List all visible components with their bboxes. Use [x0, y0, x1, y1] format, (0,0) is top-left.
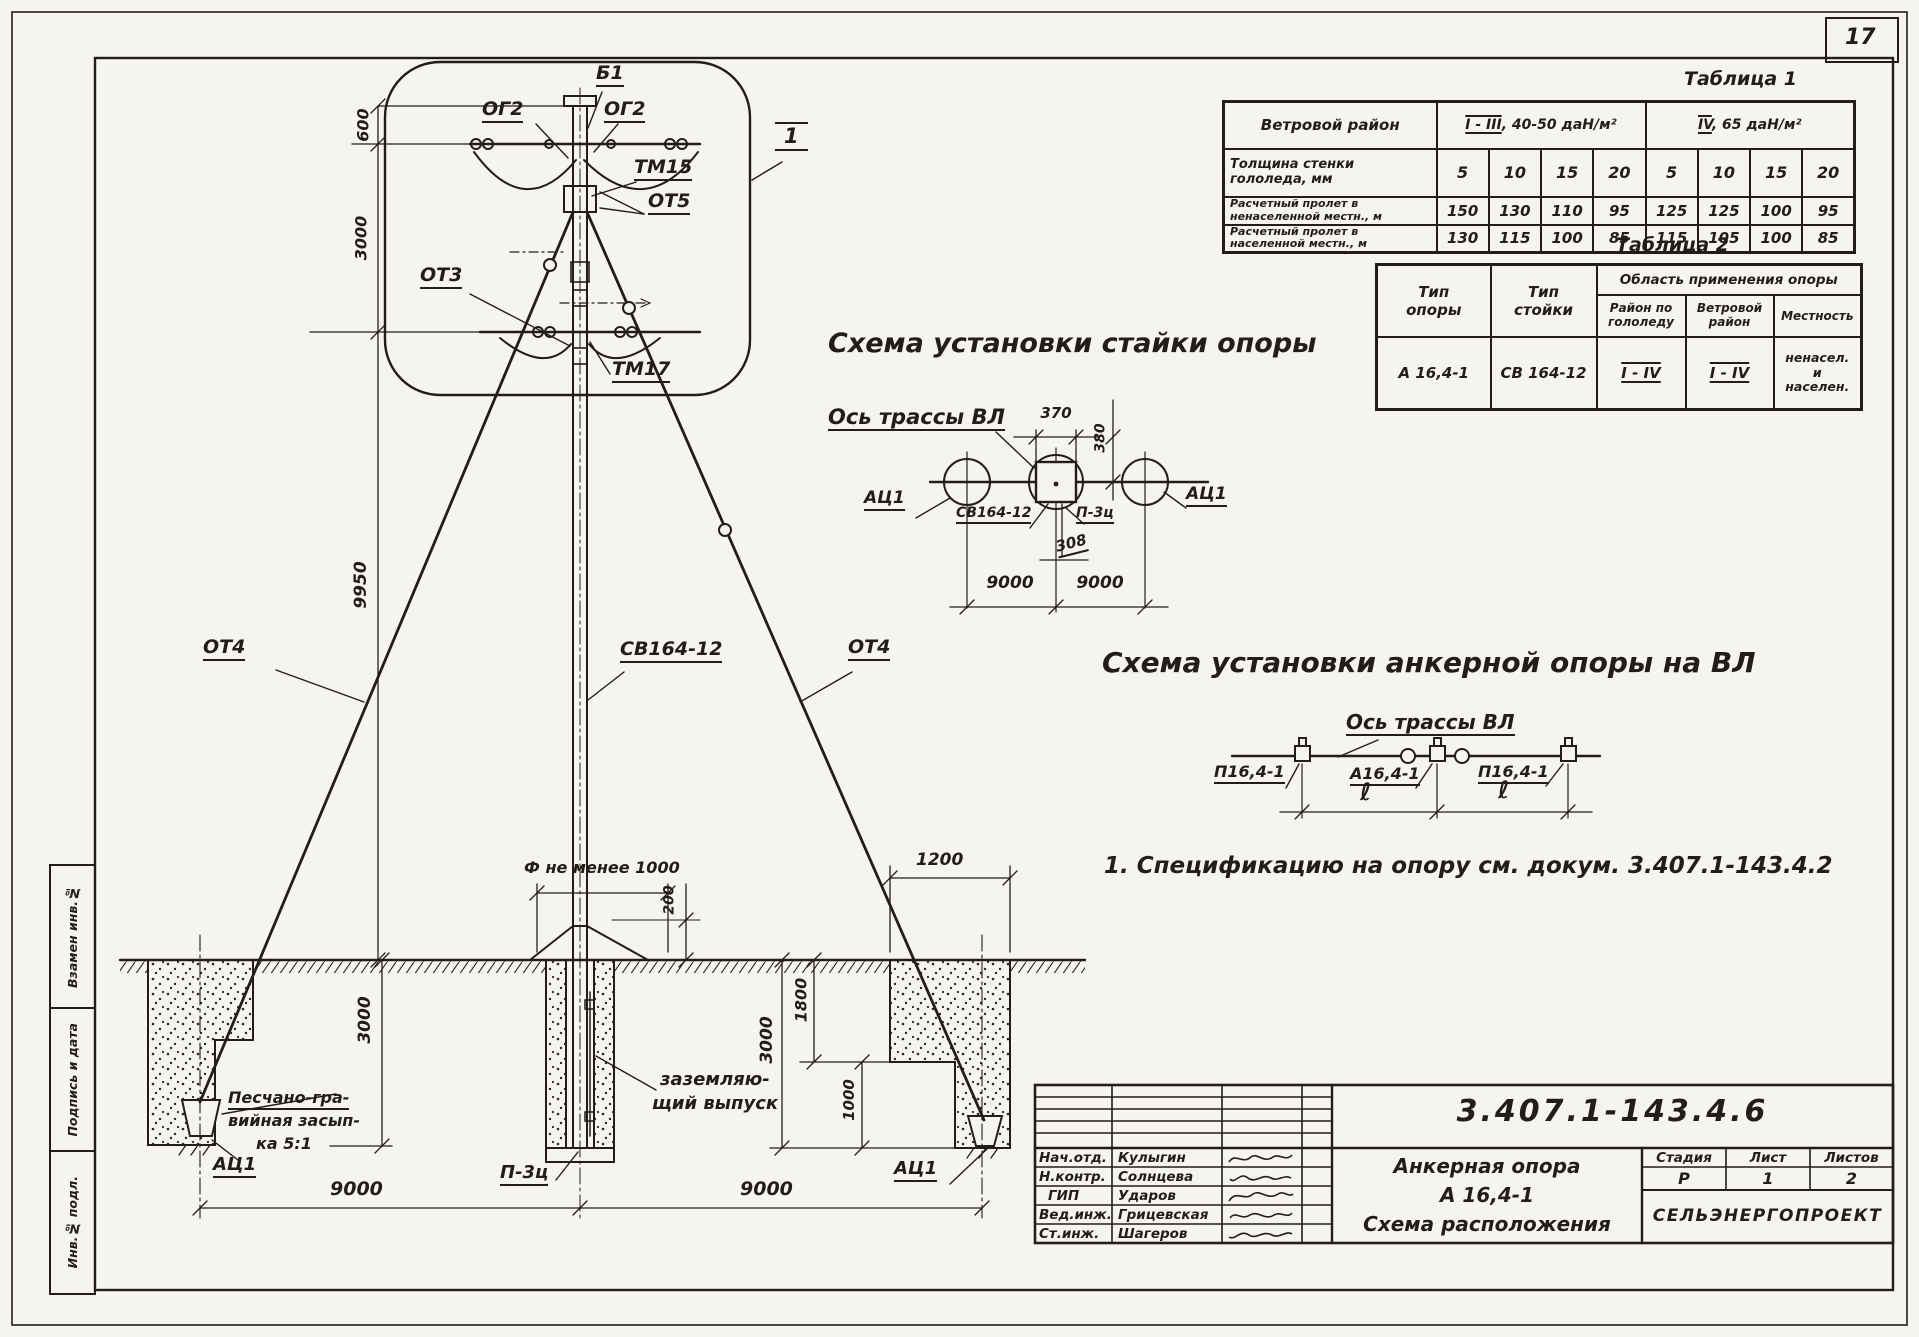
label-anchor-right: АЦ1 [894, 1160, 937, 1182]
scheme-stand-axis-label: Ось трассы ВЛ [828, 406, 1005, 431]
table2: Тип опоры Тип стойки Область применения … [1375, 263, 1863, 411]
sub-wind-line1: Ветровой [1697, 301, 1762, 315]
value-cell: 5 [1437, 149, 1489, 197]
wind-range-1: I - III [1465, 117, 1501, 133]
grounding-note: заземляю- щий выпуск [660, 1068, 778, 1117]
sheet-number: 17 [1845, 26, 1876, 49]
sheet-value: 1 [1726, 1169, 1810, 1188]
value-cell: 125 [1698, 197, 1750, 225]
sub-wind-line2: район [1709, 315, 1751, 329]
value-cell: 20 [1802, 149, 1854, 197]
value-cell: 15 [1541, 149, 1593, 197]
dim-3000-upper: 3000 [354, 216, 371, 261]
table2-area-header: Область применения опоры [1597, 265, 1862, 295]
role-name: Кулыгин [1118, 1150, 1186, 1166]
drawing-title: Анкерная опора А 16,4-1 Схема расположен… [1332, 1152, 1642, 1238]
scheme-line-span-right: ℓ [1498, 778, 1509, 803]
dim-9950: 9950 [353, 561, 371, 608]
col-stand-line1: Тип [1528, 283, 1559, 301]
dim-3000-pit-right: 3000 [759, 1016, 777, 1063]
label-ot4-left: ОТ4 [203, 638, 245, 661]
table1-caption: Таблица 1 [1684, 70, 1797, 90]
grounding-line1: заземляю- [660, 1069, 770, 1090]
table1-wind-group1: I - III, 40-50 даН/м² [1437, 102, 1646, 149]
span1-label-line1: Расчетный пролет в [1230, 197, 1358, 210]
value-cell: 95 [1802, 197, 1854, 225]
role-label: Вед.инж. [1039, 1207, 1112, 1223]
label-ot3: ОТ3 [420, 266, 462, 289]
title-line2: А 16,4-1 [1440, 1183, 1534, 1207]
value-cell: 10 [1489, 149, 1541, 197]
stamp-sign-date: Подпись и дата [50, 1008, 95, 1151]
sheets-value: 2 [1810, 1169, 1893, 1188]
backfill-note: Песчано-гра- вийная засып- ка 5:1 [228, 1086, 360, 1156]
ice-label-line1: Толщина стенки [1230, 157, 1354, 172]
backfill-line2: вийная засып- [228, 1111, 360, 1130]
sheets-label: Листов [1810, 1150, 1893, 1166]
wind-load-1: , 40-50 даН/м² [1502, 117, 1617, 133]
grounding-line2: щий выпуск [652, 1093, 778, 1114]
table1-wind-group2: IV, 65 даН/м² [1646, 102, 1855, 149]
scheme-stand-title: Схема установки стайки опоры [828, 330, 1317, 358]
table2-terrain: ненасел. и населен. [1774, 337, 1862, 410]
span2-label-line2: населенной местн., м [1230, 237, 1367, 250]
col-pole-line1: Тип [1418, 283, 1449, 301]
signature [1226, 1188, 1296, 1204]
value-cell: 130 [1437, 225, 1489, 253]
view-marker: 1 [775, 122, 808, 151]
signature [1226, 1226, 1296, 1242]
table1-wind-label: Ветровой район [1224, 102, 1437, 149]
col-pole-line2: опоры [1406, 301, 1461, 319]
table2-pole-type: А 16,4-1 [1377, 337, 1491, 410]
table2-col-stand: Тип стойки [1491, 265, 1597, 337]
doc-number: 3.407.1-143.4.6 [1332, 1094, 1893, 1129]
table1-span2-label: Расчетный пролет в населенной местн., м [1224, 225, 1437, 253]
col-stand-line2: стойки [1514, 301, 1573, 319]
dim-3000-pit-left: 3000 [357, 996, 375, 1043]
terrain-line1: ненасел. [1785, 350, 1849, 365]
signature [1226, 1150, 1296, 1166]
drawing-sheet: 17 Б1 ОГ2 ОГ2 ТМ15 ОТ5 ОТ3 ТМ17 1 ОТ4 СВ… [0, 0, 1919, 1337]
signature [1226, 1207, 1296, 1223]
scheme-stand-anchor-right: АЦ1 [1186, 486, 1227, 507]
table1-ice-label: Толщина стенки гололеда, мм [1224, 149, 1437, 197]
terrain-line2: и [1813, 365, 1822, 380]
table2-caption: Таблица 2 [1616, 236, 1729, 256]
stage-value: Р [1642, 1169, 1726, 1188]
scheme-stand-9000-left: 9000 [986, 575, 1033, 593]
label-tm15: ТМ15 [634, 158, 692, 181]
sheet-label: Лист [1726, 1150, 1810, 1166]
span1-label-line2: ненаселенной местн., м [1230, 210, 1382, 223]
scheme-line-pole-left: П16,4-1 [1214, 764, 1285, 784]
dim-diameter: Ф не менее 1000 [524, 860, 680, 877]
value-cell: 110 [1541, 197, 1593, 225]
dim-1000: 1000 [842, 1079, 858, 1121]
ice-range: I - IV [1621, 364, 1660, 382]
scheme-stand-9000-right: 9000 [1076, 575, 1123, 593]
stage-label: Стадия [1642, 1150, 1726, 1166]
span2-label-line1: Расчетный пролет в [1230, 225, 1358, 238]
value-cell: 150 [1437, 197, 1489, 225]
signature [1226, 1169, 1296, 1185]
scheme-line-title: Схема установки анкерной опоры на ВЛ [1102, 648, 1756, 677]
role-name: Солнцева [1118, 1169, 1193, 1185]
dim-9000-right: 9000 [740, 1180, 793, 1200]
value-cell: 100 [1750, 225, 1802, 253]
label-b1: Б1 [596, 64, 624, 87]
table2-ice-range: I - IV [1597, 337, 1686, 410]
label-og2-left: ОГ2 [482, 100, 523, 123]
backfill-line1: Песчано-гра- [228, 1088, 349, 1110]
table2-sub-ice: Район по гололеду [1597, 295, 1686, 337]
table2-stand-type: СВ 164-12 [1491, 337, 1597, 410]
scheme-line-span-left: ℓ [1360, 780, 1371, 805]
label-anchor-left: АЦ1 [213, 1156, 256, 1178]
table2-sub-wind: Ветровой район [1686, 295, 1774, 337]
title-line3: Схема расположения [1363, 1212, 1611, 1236]
backfill-line3: ка 5:1 [228, 1134, 312, 1153]
label-tm17: ТМ17 [612, 360, 670, 383]
table2-sub-terrain: Местность [1774, 295, 1862, 337]
scheme-stand-stand-label: СВ164-12 [956, 506, 1031, 524]
stamp-inv-orig: Инв.№ подл. [50, 1151, 95, 1294]
value-cell: 115 [1489, 225, 1541, 253]
value-cell: 95 [1593, 197, 1645, 225]
value-cell: 130 [1489, 197, 1541, 225]
sub-ice-line2: гололеду [1608, 315, 1674, 329]
terrain-line3: населен. [1785, 379, 1849, 394]
label-pile: П-3ц [500, 1164, 548, 1186]
value-cell: 15 [1750, 149, 1802, 197]
role-name: Шагеров [1118, 1226, 1187, 1242]
value-cell: 100 [1541, 225, 1593, 253]
value-cell: 5 [1646, 149, 1698, 197]
table2-col-pole: Тип опоры [1377, 265, 1491, 337]
scheme-line-pole-right: П16,4-1 [1478, 764, 1549, 784]
label-og2-right: ОГ2 [604, 100, 645, 123]
label-stand: СВ164-12 [620, 640, 722, 663]
role-label: ГИП [1048, 1188, 1079, 1204]
spec-note: 1. Спецификацию на опору см. докум. 3.40… [1104, 854, 1833, 878]
pole [564, 88, 596, 1218]
title-line1: Анкерная опора [1394, 1154, 1581, 1178]
sub-ice-line1: Район по [1610, 301, 1673, 315]
scheme-dim-380: 380 [1094, 423, 1109, 452]
label-ot5: ОТ5 [648, 192, 690, 215]
role-name: Ударов [1118, 1188, 1176, 1204]
role-label: Ст.инж. [1039, 1226, 1099, 1242]
dim-1200: 1200 [916, 852, 963, 870]
value-cell: 100 [1750, 197, 1802, 225]
table2-wind-range: I - IV [1686, 337, 1774, 410]
dim-1800: 1800 [794, 978, 811, 1023]
role-label: Н.контр. [1039, 1169, 1106, 1185]
value-cell: 125 [1646, 197, 1698, 225]
value-cell: 10 [1698, 149, 1750, 197]
role-name: Грицевская [1118, 1207, 1208, 1223]
wind-load-2: , 65 даН/м² [1712, 117, 1802, 133]
value-cell: 85 [1802, 225, 1854, 253]
role-label: Нач.отд. [1039, 1150, 1107, 1166]
value-cell: 20 [1593, 149, 1645, 197]
table1: Ветровой район I - III, 40-50 даН/м² IV,… [1222, 100, 1856, 254]
label-ot4-right: ОТ4 [848, 638, 890, 661]
scheme-dim-370: 370 [1040, 406, 1071, 422]
scheme-stand-pile-label: П-3ц [1076, 506, 1114, 524]
dim-600: 600 [356, 108, 373, 141]
wind-range: I - IV [1710, 364, 1749, 382]
table1-span1-label: Расчетный пролет в ненаселенной местн., … [1224, 197, 1437, 225]
wind-range-2: IV [1698, 117, 1712, 133]
organization-name: СЕЛЬЭНЕРГОПРОЕКТ [1642, 1206, 1893, 1226]
dim-200: 200 [663, 885, 678, 914]
ice-label-line2: гололеда, мм [1230, 172, 1333, 187]
scheme-stand-anchor-left: АЦ1 [864, 490, 905, 511]
dim-9000-left: 9000 [330, 1180, 383, 1200]
stamp-replaced-inv: Взамен инв.№ [50, 865, 95, 1008]
scheme-line-axis-label: Ось трассы ВЛ [1346, 712, 1515, 736]
